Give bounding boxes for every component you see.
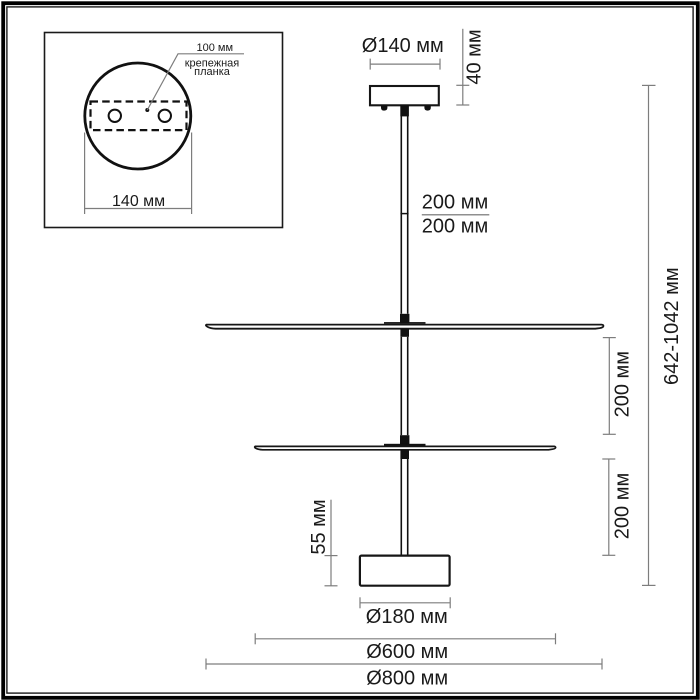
svg-text:Ø600 мм: Ø600 мм: [366, 641, 448, 663]
svg-text:Ø140 мм: Ø140 мм: [362, 35, 444, 57]
svg-text:планка: планка: [194, 66, 231, 78]
svg-text:642-1042 мм: 642-1042 мм: [661, 267, 683, 385]
svg-text:200 мм: 200 мм: [611, 351, 633, 417]
svg-text:200 мм: 200 мм: [422, 192, 488, 214]
svg-text:Ø180 мм: Ø180 мм: [366, 606, 448, 628]
svg-text:200 мм: 200 мм: [422, 216, 488, 238]
svg-text:Ø800 мм: Ø800 мм: [366, 667, 448, 689]
svg-text:40 мм: 40 мм: [464, 29, 486, 84]
svg-text:55 мм: 55 мм: [308, 499, 330, 554]
svg-text:200 мм: 200 мм: [611, 473, 633, 539]
svg-text:100 мм: 100 мм: [197, 42, 234, 54]
svg-text:140 мм: 140 мм: [112, 193, 165, 210]
